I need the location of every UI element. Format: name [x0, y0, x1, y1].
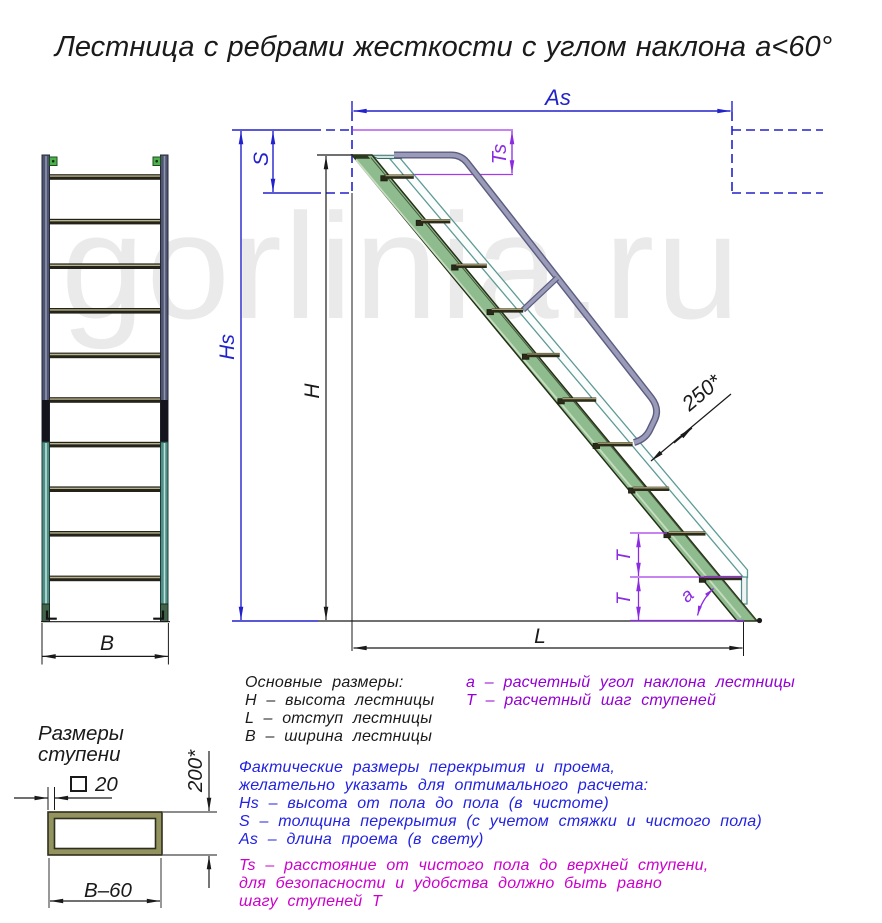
- svg-text:B–60: B–60: [84, 879, 132, 902]
- svg-text:As: As: [543, 85, 571, 110]
- svg-text:B: B: [100, 632, 114, 655]
- svg-text:T: T: [614, 592, 635, 605]
- svg-text:H: H: [301, 383, 324, 399]
- svg-text:Ts: Ts: [489, 144, 511, 164]
- svg-text:S: S: [250, 152, 273, 166]
- svg-text:20: 20: [94, 773, 118, 796]
- svg-text:200*: 200*: [184, 749, 207, 793]
- svg-text:250*: 250*: [677, 370, 726, 417]
- svg-text:a: a: [676, 585, 698, 608]
- svg-text:Hs: Hs: [216, 334, 239, 360]
- svg-text:T: T: [614, 549, 635, 562]
- svg-text:Размеры: Размеры: [38, 722, 124, 745]
- svg-text:ступени: ступени: [38, 743, 121, 766]
- svg-text:L: L: [534, 625, 546, 648]
